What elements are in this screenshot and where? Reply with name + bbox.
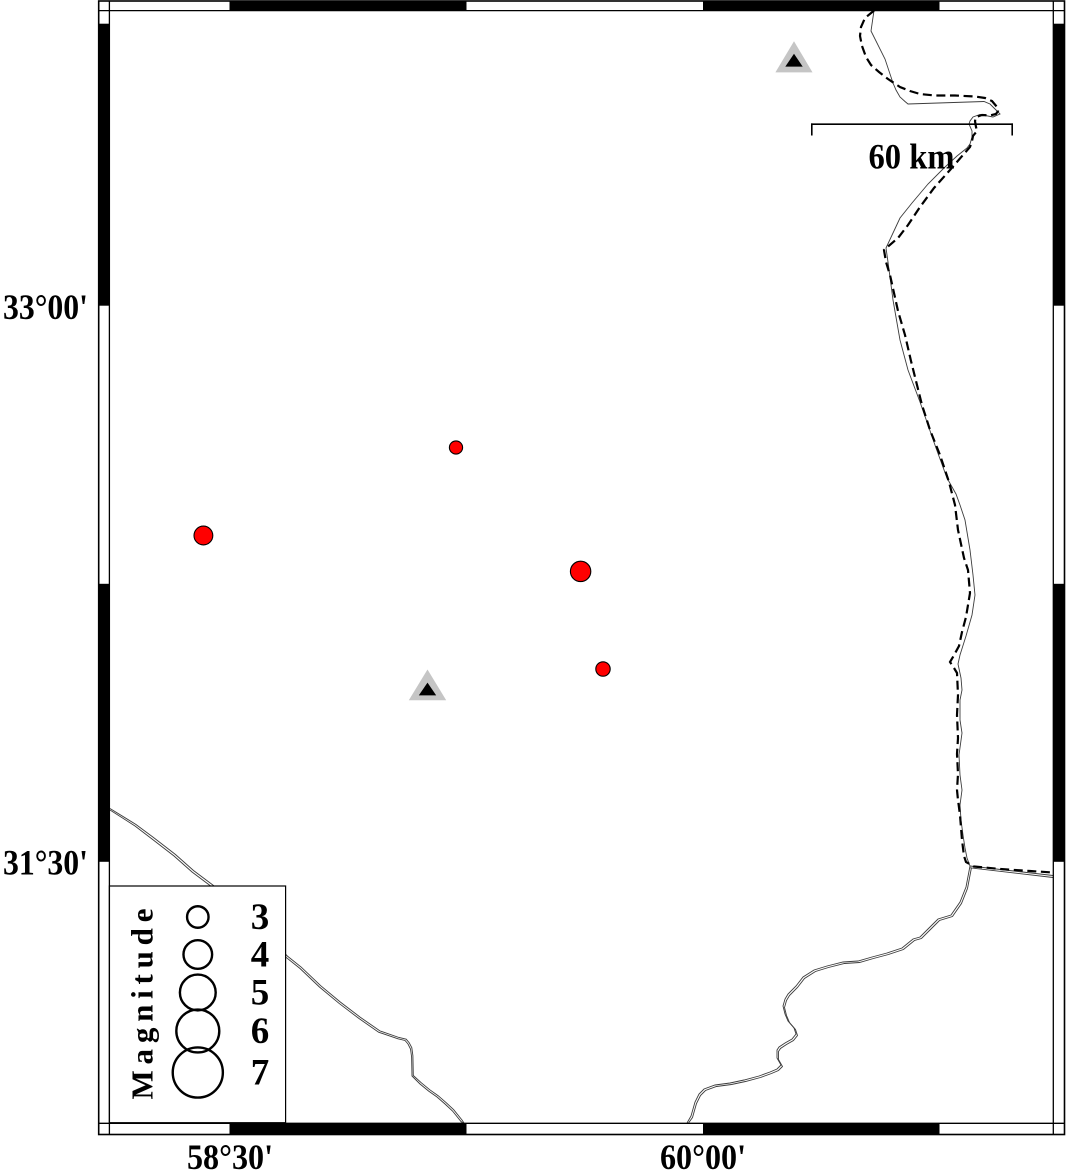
svg-text:6: 6	[251, 1011, 270, 1052]
svg-text:7: 7	[251, 1053, 270, 1094]
svg-text:58°30': 58°30'	[187, 1137, 273, 1172]
svg-text:33°00': 33°00'	[3, 287, 88, 327]
svg-text:5: 5	[251, 973, 270, 1014]
svg-text:31°30': 31°30'	[3, 843, 88, 883]
svg-text:3: 3	[251, 897, 270, 938]
svg-text:60 km: 60 km	[869, 136, 955, 176]
svg-text:60°00': 60°00'	[660, 1137, 746, 1172]
svg-text:4: 4	[251, 935, 270, 976]
